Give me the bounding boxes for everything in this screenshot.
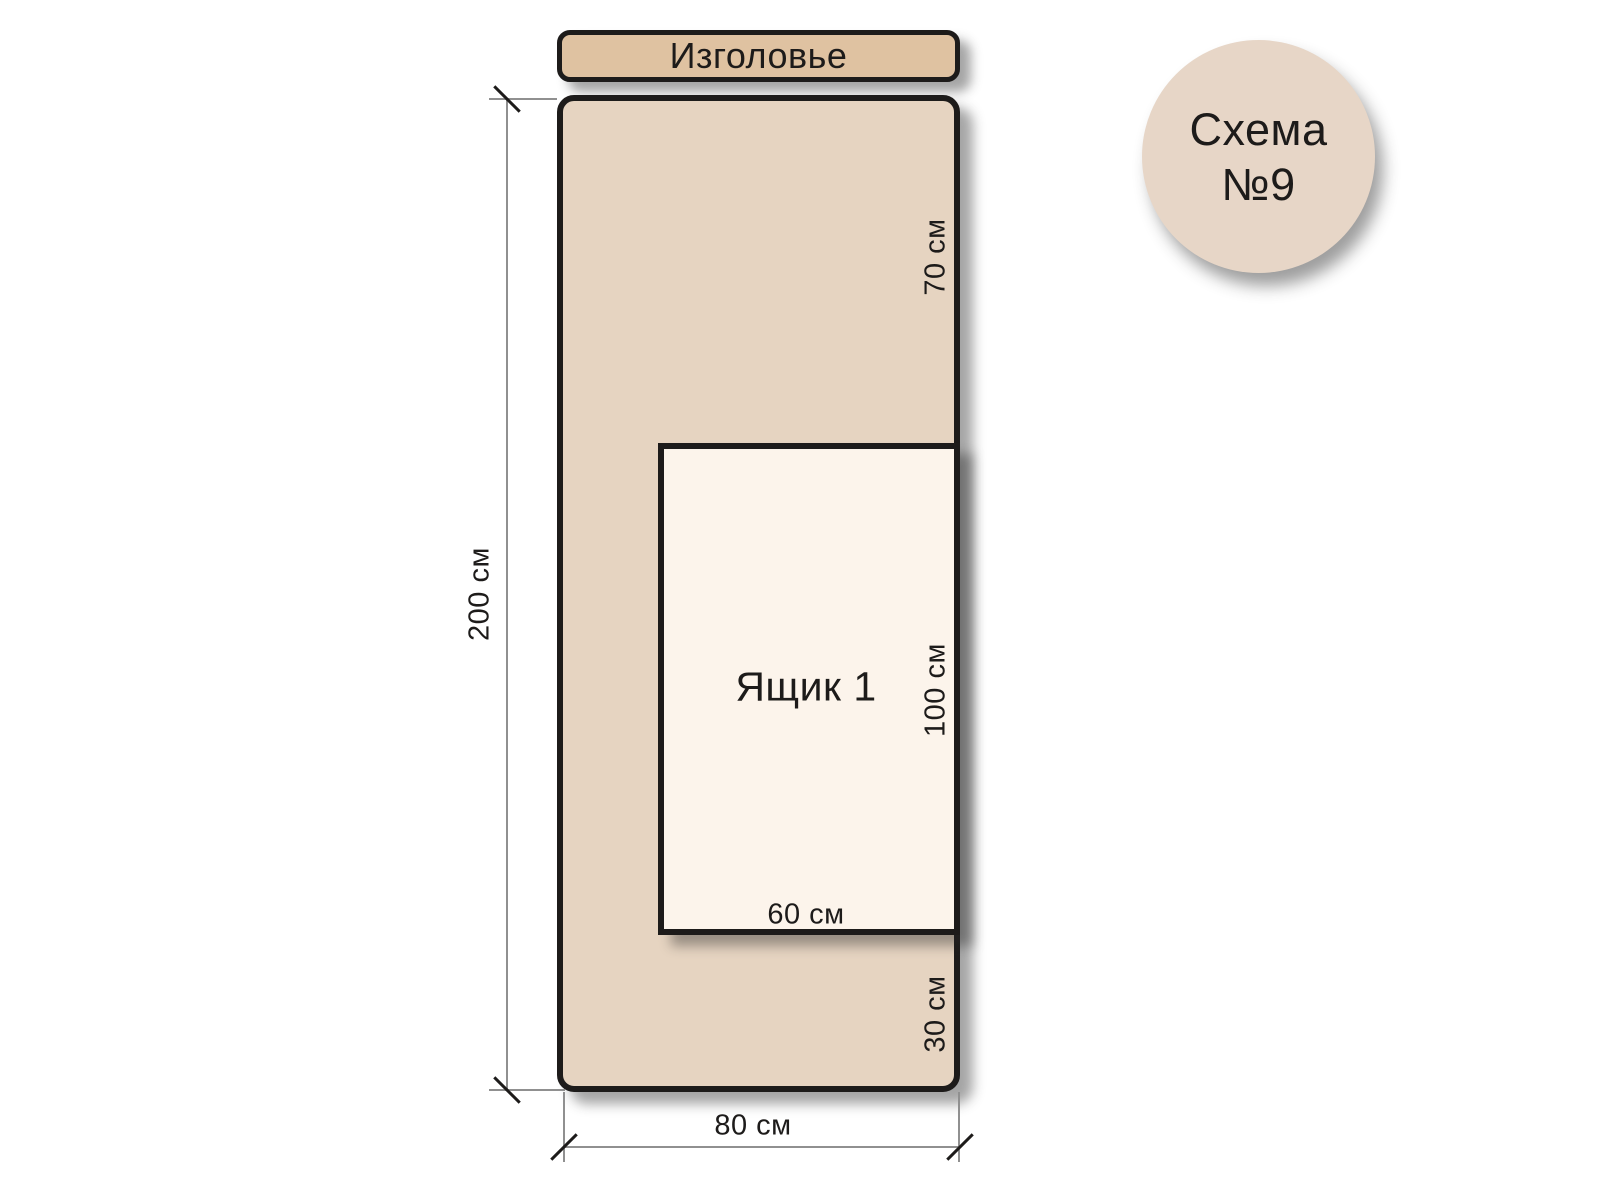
height-dimension-extension-top [489, 98, 557, 100]
width-dimension-extension-right [958, 1092, 960, 1162]
scheme-badge-number: №9 [1221, 157, 1295, 212]
headboard: Изголовье [557, 30, 960, 82]
drawer-width-label: 60 см [767, 899, 844, 932]
width-dimension-line [563, 1146, 960, 1148]
bed-scheme-diagram: Изголовье Ящик 1 100 см 60 см 70 см 30 с… [0, 0, 1600, 1200]
bed-width-label: 80 см [714, 1110, 791, 1143]
height-dimension-extension-bottom [489, 1089, 565, 1091]
bed-height-label: 200 см [464, 547, 497, 641]
drawer-height-label: 100 см [920, 643, 953, 737]
scheme-badge: Схема №9 [1142, 40, 1375, 273]
width-dimension-extension-left [563, 1092, 565, 1162]
headboard-label: Изголовье [670, 35, 848, 77]
scheme-badge-title: Схема [1190, 102, 1328, 157]
bed-top-section-label: 70 см [920, 218, 953, 295]
drawer-title: Ящик 1 [735, 664, 876, 711]
height-dimension-line [506, 99, 508, 1090]
bed-bottom-section-label: 30 см [920, 975, 953, 1052]
